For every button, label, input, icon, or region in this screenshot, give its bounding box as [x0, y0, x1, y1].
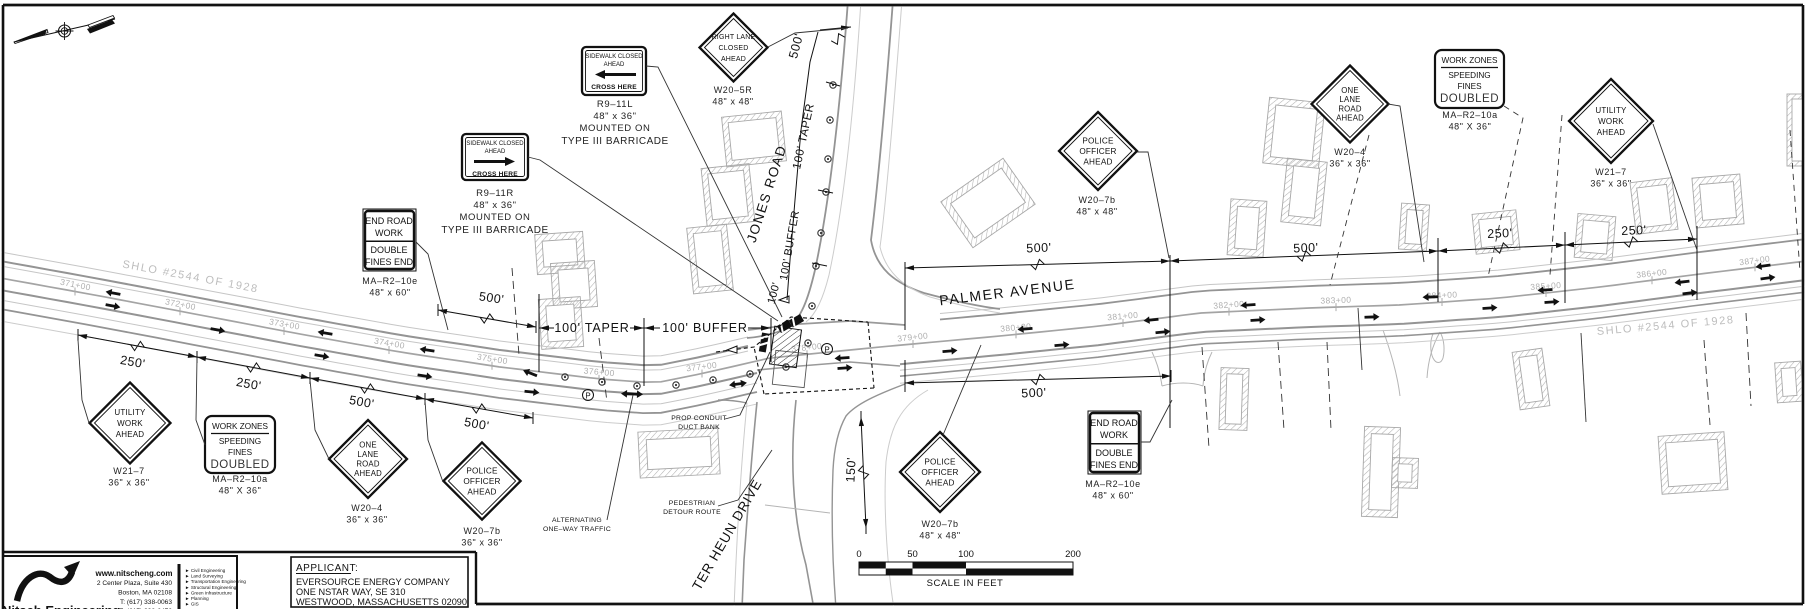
- svg-text:SCALE IN FEET: SCALE IN FEET: [927, 578, 1004, 589]
- svg-text:48" x 36": 48" x 36": [593, 111, 636, 122]
- svg-text:150': 150': [843, 457, 858, 483]
- svg-text:UTILITY: UTILITY: [1595, 106, 1627, 115]
- svg-text:W21–7: W21–7: [1595, 167, 1627, 177]
- svg-text:► Structural Engineering: ► Structural Engineering: [185, 585, 237, 590]
- svg-text:250': 250': [1621, 223, 1647, 238]
- svg-text:48" x 60": 48" x 60": [369, 288, 410, 298]
- svg-text:MOUNTED ON: MOUNTED ON: [580, 123, 651, 134]
- svg-text:W20–7b: W20–7b: [921, 519, 958, 529]
- svg-text:SIDEWALK CLOSED: SIDEWALK CLOSED: [466, 141, 524, 147]
- svg-text:UTILITY: UTILITY: [114, 408, 146, 417]
- svg-text:48" x 48": 48" x 48": [1076, 207, 1117, 217]
- svg-text:TYPE III BARRICADE: TYPE III BARRICADE: [561, 136, 668, 147]
- svg-text:MA–R2–10a: MA–R2–10a: [1442, 110, 1497, 120]
- svg-text:CROSS HERE: CROSS HERE: [472, 171, 518, 178]
- svg-text:100' TAPER: 100' TAPER: [554, 321, 629, 335]
- svg-text:DOUBLED: DOUBLED: [1440, 93, 1499, 105]
- svg-text:► Land Surveying: ► Land Surveying: [185, 574, 223, 579]
- svg-text:AHEAD: AHEAD: [1083, 157, 1112, 166]
- svg-text:ROAD: ROAD: [1338, 104, 1361, 113]
- svg-text:EVERSOURCE ENERGY COMPANY: EVERSOURCE ENERGY COMPANY: [296, 577, 450, 587]
- svg-text:ONE NSTAR WAY, SE 310: ONE NSTAR WAY, SE 310: [296, 587, 405, 597]
- svg-text:W20–7b: W20–7b: [1078, 195, 1115, 205]
- svg-text:www.nitscheng.com: www.nitscheng.com: [94, 569, 172, 578]
- svg-text:ROAD: ROAD: [356, 460, 379, 469]
- svg-text:500': 500': [1293, 241, 1319, 256]
- svg-text:W20–5R: W20–5R: [714, 85, 753, 95]
- svg-text:LANE: LANE: [1339, 95, 1360, 104]
- svg-text:END ROAD: END ROAD: [1090, 418, 1138, 428]
- svg-text:200: 200: [1065, 549, 1081, 560]
- svg-text:W20–4: W20–4: [1334, 147, 1366, 157]
- svg-text:ONE: ONE: [1341, 86, 1359, 95]
- svg-text:R9–11L: R9–11L: [597, 99, 633, 110]
- svg-text:W21–7: W21–7: [113, 466, 145, 476]
- svg-text:T: (617) 338-0063: T: (617) 338-0063: [120, 599, 172, 606]
- svg-text:POLICE: POLICE: [466, 466, 498, 475]
- svg-text:36" x 36": 36" x 36": [1329, 159, 1370, 169]
- svg-text:FINES END: FINES END: [365, 257, 414, 267]
- svg-text:500': 500': [1021, 386, 1047, 401]
- svg-text:DOUBLE: DOUBLE: [370, 245, 407, 255]
- svg-text:250': 250': [1487, 226, 1513, 241]
- svg-text:END ROAD: END ROAD: [365, 216, 413, 226]
- svg-text:MA–R2–10e: MA–R2–10e: [362, 276, 417, 286]
- svg-text:Boston, MA 02108: Boston, MA 02108: [118, 590, 172, 597]
- svg-text:P: P: [824, 346, 829, 355]
- svg-text:FINES END: FINES END: [1090, 460, 1139, 470]
- svg-text:DOUBLED: DOUBLED: [210, 459, 269, 471]
- svg-text:36" x 36": 36" x 36": [346, 515, 387, 525]
- svg-text:SPEEDING: SPEEDING: [1448, 71, 1490, 80]
- svg-text:ALTERNATING: ALTERNATING: [552, 517, 602, 524]
- svg-text:OFFICER: OFFICER: [463, 477, 500, 486]
- svg-text:TYPE III BARRICADE: TYPE III BARRICADE: [441, 225, 548, 236]
- svg-text:P: P: [585, 392, 590, 401]
- svg-text:36" x 36": 36" x 36": [1590, 179, 1631, 189]
- svg-text:PEDESTRIAN: PEDESTRIAN: [669, 500, 715, 507]
- svg-text:48" x 60": 48" x 60": [1092, 491, 1133, 501]
- svg-text:AHEAD: AHEAD: [354, 469, 382, 478]
- svg-text:OFFICER: OFFICER: [921, 468, 958, 477]
- svg-text:WORK ZONES: WORK ZONES: [212, 422, 268, 431]
- svg-text:W20–7b: W20–7b: [463, 526, 500, 536]
- svg-text:AHEAD: AHEAD: [1336, 114, 1364, 123]
- svg-text:FINES: FINES: [1457, 82, 1482, 91]
- svg-text:POLICE: POLICE: [924, 457, 956, 466]
- svg-text:WORK: WORK: [117, 419, 143, 428]
- svg-text:PROP CONDUIT: PROP CONDUIT: [671, 415, 727, 422]
- svg-text:ONE: ONE: [359, 440, 377, 449]
- svg-text:AHEAD: AHEAD: [1597, 128, 1626, 137]
- svg-text:WORK ZONES: WORK ZONES: [1442, 56, 1498, 65]
- svg-text:383+00: 383+00: [1320, 295, 1351, 306]
- svg-text:AHEAD: AHEAD: [925, 478, 954, 487]
- svg-text:MA–R2–10a: MA–R2–10a: [212, 474, 267, 484]
- svg-text:► Transportation Engineering: ► Transportation Engineering: [185, 579, 246, 584]
- svg-text:48" X 36": 48" X 36": [1449, 122, 1492, 132]
- svg-text:MOUNTED ON: MOUNTED ON: [460, 212, 531, 223]
- svg-text:CROSS HERE: CROSS HERE: [591, 84, 637, 91]
- svg-text:MA–R2–10e: MA–R2–10e: [1085, 479, 1140, 489]
- svg-text:WORK: WORK: [375, 228, 403, 238]
- svg-text:SPEEDING: SPEEDING: [219, 437, 261, 446]
- svg-text:SIDEWALK CLOSED: SIDEWALK CLOSED: [585, 54, 643, 60]
- svg-text:AHEAD: AHEAD: [467, 487, 496, 496]
- svg-text:CLOSED: CLOSED: [719, 45, 749, 52]
- svg-text:50: 50: [907, 549, 918, 560]
- svg-text:POLICE: POLICE: [1082, 136, 1114, 145]
- svg-text:Nitsch Engineering: Nitsch Engineering: [2, 603, 121, 609]
- svg-text:OFFICER: OFFICER: [1079, 147, 1116, 156]
- svg-text:AHEAD: AHEAD: [116, 430, 145, 439]
- svg-text:► Civil Engineering: ► Civil Engineering: [185, 568, 226, 573]
- svg-text:36" x 36": 36" x 36": [461, 538, 502, 548]
- svg-text:2 Center Plaza, Suite 430: 2 Center Plaza, Suite 430: [97, 580, 172, 587]
- svg-text:DUCT BANK: DUCT BANK: [678, 424, 720, 431]
- svg-text:0: 0: [856, 549, 861, 560]
- svg-text:W20–4: W20–4: [351, 503, 383, 513]
- svg-text:RIGHT LANE: RIGHT LANE: [712, 34, 756, 41]
- svg-text:48" X 36": 48" X 36": [219, 486, 262, 496]
- svg-text:DOUBLE: DOUBLE: [1095, 448, 1132, 458]
- svg-text:384+00: 384+00: [1426, 290, 1457, 301]
- svg-text:100: 100: [958, 549, 974, 560]
- svg-text:► GIS: ► GIS: [185, 602, 199, 607]
- svg-text:► Green Infrastructure: ► Green Infrastructure: [185, 590, 232, 595]
- svg-text:500': 500': [1026, 241, 1052, 256]
- svg-text:LANE: LANE: [357, 450, 378, 459]
- svg-text:AHEAD: AHEAD: [485, 149, 506, 155]
- svg-text:R9–11R: R9–11R: [476, 188, 514, 199]
- svg-text:DETOUR ROUTE: DETOUR ROUTE: [663, 509, 721, 516]
- svg-text:AHEAD: AHEAD: [604, 62, 625, 68]
- svg-text:36" x 36": 36" x 36": [108, 478, 149, 488]
- svg-text:48" x 48": 48" x 48": [712, 97, 753, 107]
- svg-text:► Planning: ► Planning: [185, 596, 209, 601]
- svg-text:WORK: WORK: [1598, 117, 1624, 126]
- svg-text:48" x 48": 48" x 48": [919, 531, 960, 541]
- svg-text:100' BUFFER: 100' BUFFER: [662, 321, 748, 335]
- svg-text:ONE–WAY TRAFFIC: ONE–WAY TRAFFIC: [543, 526, 611, 533]
- svg-text:WESTWOOD, MASSACHUSETTS 0209: WESTWOOD, MASSACHUSETTS 02090: [296, 597, 467, 607]
- svg-text:WORK: WORK: [1100, 430, 1128, 440]
- svg-text:APPLICANT:: APPLICANT:: [296, 563, 358, 574]
- svg-text:FINES: FINES: [228, 448, 253, 457]
- svg-text:48" x 36": 48" x 36": [473, 200, 516, 211]
- svg-text:AHEAD: AHEAD: [721, 56, 746, 63]
